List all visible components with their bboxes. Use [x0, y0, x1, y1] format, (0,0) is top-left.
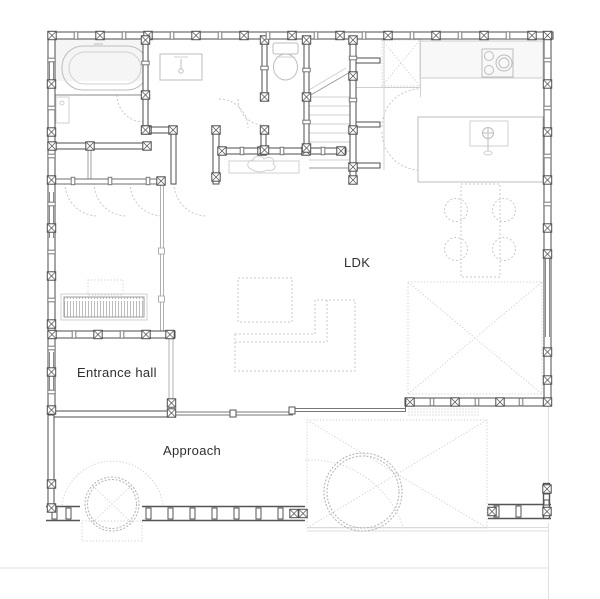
wall-entrance-south — [48, 411, 175, 417]
sliding-glass-doors — [175, 399, 406, 417]
toilet-fixture — [273, 43, 298, 80]
floor-plan-drawing: LDK Entrance hall Approach — [0, 0, 600, 599]
low-table — [238, 278, 292, 322]
garden-tree-small — [62, 461, 163, 541]
vanity-basin-fixture — [160, 54, 202, 80]
dining-chair — [493, 199, 516, 222]
structural-posts — [47, 31, 551, 517]
floor-plan-page: LDK Entrance hall Approach — [0, 0, 600, 599]
garden-tree-large — [324, 453, 402, 531]
site-boundary-lines — [0, 406, 549, 599]
area-label-approach: Approach — [163, 443, 221, 458]
porch-mat — [408, 408, 480, 417]
dashed-furniture — [88, 40, 542, 394]
dining-table — [461, 184, 500, 277]
bench — [88, 280, 123, 295]
room-label-ldk: LDK — [344, 255, 370, 270]
washing-machine-fixture — [56, 97, 69, 123]
wall-entrance-north — [48, 331, 175, 338]
dining-chair — [445, 238, 468, 261]
planter-box — [82, 521, 142, 541]
tv-board — [61, 294, 147, 320]
light-partitions — [54, 39, 421, 399]
dining-chair — [445, 199, 468, 222]
dining-chair — [493, 238, 516, 261]
sofa — [235, 300, 355, 371]
kitchen-island — [418, 117, 543, 182]
washbasin-counter — [229, 156, 299, 173]
wall-garden-west — [48, 415, 54, 507]
window-east — [545, 258, 551, 337]
walls — [48, 32, 553, 507]
room-label-entrance-hall: Entrance hall — [77, 365, 157, 380]
